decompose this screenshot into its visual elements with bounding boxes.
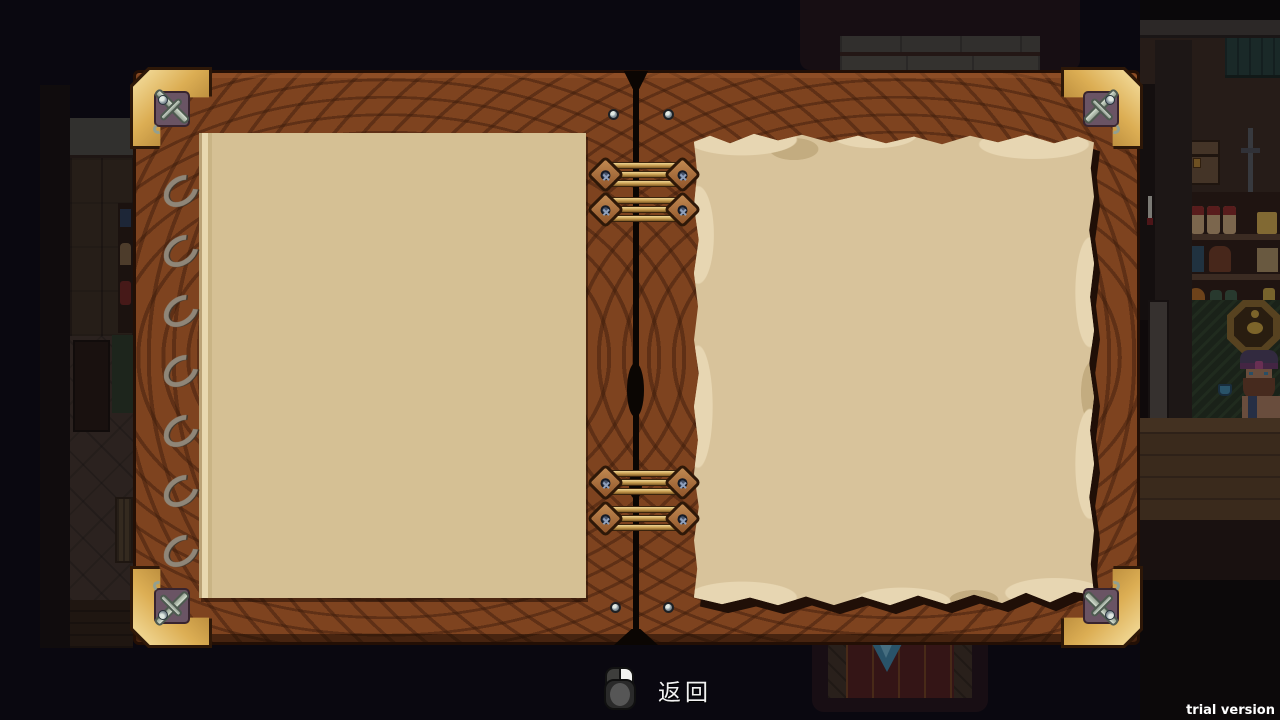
vest-strap [1248, 396, 1257, 420]
spine-hinge [588, 155, 700, 195]
game-screen: 返回 trial version [0, 0, 1280, 720]
binder-ring-icon [157, 228, 204, 273]
rivet-icon [1105, 95, 1115, 105]
mouse-right-click-icon [602, 666, 638, 712]
paper-stack [1257, 248, 1278, 272]
door-lintel [840, 36, 1040, 52]
screw-icon [608, 109, 619, 120]
leather-satchel [1209, 246, 1231, 272]
coin-stack-icon [1247, 322, 1263, 334]
binder-ring-icon [157, 168, 204, 213]
hinge-screw-icon [675, 203, 689, 217]
background-picture-frame [812, 640, 988, 712]
spine-notch-bottom [614, 629, 658, 645]
sword-guard [1241, 148, 1260, 153]
background-shop-right [1140, 0, 1280, 720]
shopkeeper [1238, 350, 1280, 420]
spine-hinge [588, 463, 700, 503]
corner-cap-bottom-right [1064, 569, 1140, 645]
spine-gap [627, 363, 644, 417]
background-shop-left [40, 85, 133, 648]
hinge-screw-icon [598, 168, 612, 182]
hinge-screw-icon [598, 476, 612, 490]
shelf-board [1183, 234, 1280, 240]
background-door-top [800, 0, 1080, 70]
window-strip [70, 118, 133, 158]
screw-icon [663, 602, 674, 613]
door-panels [840, 56, 1040, 70]
corner-cap-top-right [1064, 70, 1140, 146]
binder-ring-icon [157, 468, 204, 513]
dark-floor [1140, 580, 1280, 720]
ceiling [1140, 0, 1280, 20]
corner-cap-bottom-left [133, 569, 209, 645]
coin-icon [1251, 310, 1259, 318]
hinge-screw-icon [675, 476, 689, 490]
potion-bottle [1223, 206, 1236, 234]
shelf-board [1183, 274, 1280, 280]
corner-cap-top-left [133, 70, 209, 146]
pillar-face [1148, 300, 1169, 430]
rivet-icon [158, 95, 168, 105]
cheese-wedge [1257, 212, 1277, 234]
counter-front [1140, 432, 1280, 520]
shelf-item-sack [120, 243, 131, 265]
binder-ring-icon [157, 348, 204, 393]
mouse-pad [610, 683, 630, 706]
screw-icon [663, 109, 674, 120]
eye [1264, 372, 1268, 375]
ceiling-beam [1140, 20, 1280, 38]
hinge-screw-icon [675, 168, 689, 182]
blue-cup [1218, 384, 1232, 396]
spine-notch-top [620, 71, 652, 89]
green-curtain [1225, 38, 1280, 78]
counter-top [1140, 418, 1280, 432]
rivet-icon [1105, 610, 1115, 620]
shelf-item-red [120, 281, 131, 305]
potion-bottle [1207, 206, 1220, 234]
binder-ring-icon [157, 408, 204, 453]
chest-clasp [1193, 158, 1201, 168]
hinge-screw-icon [598, 203, 612, 217]
door-mat [73, 340, 110, 432]
left-page [199, 133, 586, 598]
candle-drip [1147, 218, 1153, 225]
trial-version-watermark: trial version [1186, 703, 1275, 718]
floor-boards [70, 600, 133, 648]
screw-icon [610, 602, 621, 613]
shelf-item-blue [120, 209, 131, 227]
back-label: 返回 [658, 673, 712, 707]
shelf [118, 203, 133, 333]
spine-hinge [588, 499, 700, 539]
back-button[interactable]: 返回 [598, 664, 728, 716]
binder-ring-icon [157, 288, 204, 333]
potion-bottle [1191, 206, 1204, 234]
hinge-screw-icon [675, 512, 689, 526]
shop-sign [1227, 300, 1280, 354]
dark-wall [40, 85, 70, 648]
hinge-screw-icon [598, 512, 612, 526]
chair [115, 497, 133, 563]
journal-book [133, 70, 1140, 645]
counter-base [1140, 520, 1280, 580]
green-rug [112, 335, 133, 413]
spine-hinge [588, 190, 700, 230]
right-page-parchment [694, 130, 1094, 607]
rivet-icon [158, 610, 168, 620]
binder-ring-icon [157, 528, 204, 573]
eye [1249, 372, 1253, 375]
